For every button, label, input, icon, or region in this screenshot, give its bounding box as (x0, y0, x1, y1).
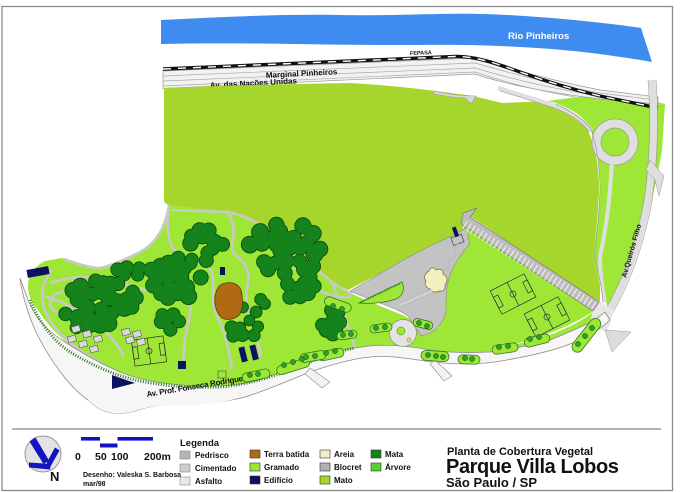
svg-text:Árvore: Árvore (385, 463, 411, 472)
svg-text:Cimentado: Cimentado (195, 464, 236, 473)
svg-text:São Paulo / SP: São Paulo / SP (446, 475, 537, 490)
svg-text:Gramado: Gramado (264, 463, 299, 472)
svg-text:N: N (50, 469, 59, 484)
svg-text:Asfalto: Asfalto (195, 477, 222, 486)
svg-text:200m: 200m (144, 451, 171, 463)
svg-text:Pedrisco: Pedrisco (195, 451, 229, 460)
svg-text:Mato: Mato (334, 476, 353, 485)
svg-text:50: 50 (95, 451, 107, 463)
svg-text:Rio Pinheiros: Rio Pinheiros (508, 31, 569, 42)
svg-text:Edifício: Edifício (264, 476, 293, 485)
svg-text:mar/98: mar/98 (83, 481, 106, 488)
svg-text:0: 0 (75, 451, 81, 463)
svg-text:100: 100 (111, 451, 129, 463)
svg-text:Mata: Mata (385, 450, 404, 459)
svg-text:FEPASA: FEPASA (410, 50, 432, 57)
svg-text:Areia: Areia (334, 450, 355, 459)
svg-text:Terra batida: Terra batida (264, 450, 310, 459)
svg-text:Legenda: Legenda (180, 438, 220, 449)
svg-text:Desenho: Valeska S. Barbosa: Desenho: Valeska S. Barbosa (83, 472, 181, 479)
svg-text:Blocret: Blocret (334, 463, 362, 472)
